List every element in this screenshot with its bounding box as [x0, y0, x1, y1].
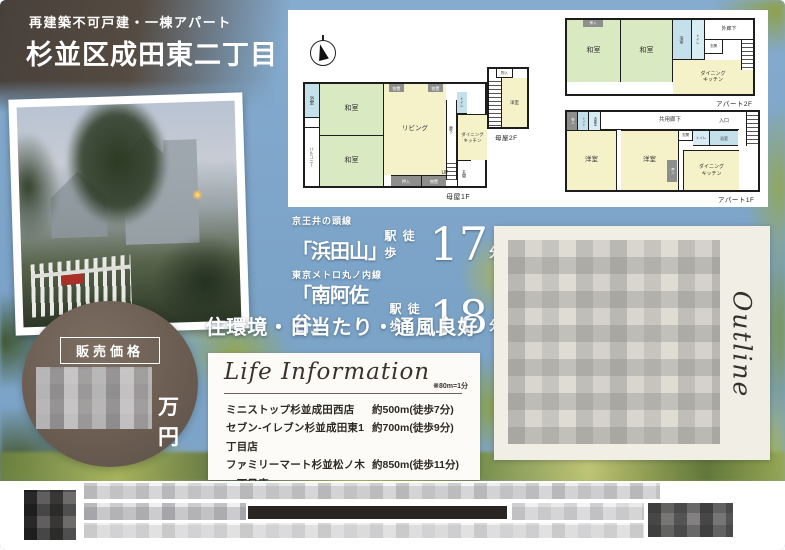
- page-title: 杉並区成田東二丁目: [26, 33, 278, 72]
- room-toilet: トイレ: [457, 92, 467, 114]
- apt1f-entrance: 玄関: [679, 130, 693, 141]
- outline-title: Outline: [728, 291, 757, 399]
- apt1f-toilet-1: トイレ: [578, 112, 589, 130]
- price-redacted-mosaic: [36, 367, 152, 429]
- walk-minutes-1: 17: [429, 225, 488, 264]
- outline-redacted-mosaic: [508, 240, 720, 444]
- catchphrase: 住環境・日当たり・通風良好: [192, 311, 492, 340]
- real-estate-flyer: 再建築不可戸建・一棟アパート 杉並区成田東二丁目 浴室 バルコニー 和室 和室 …: [0, 0, 785, 550]
- floorplan-panel: 浴室 バルコニー 和室 和室 リビング 物置 物置 廊下 トイレ ダイニング キ…: [288, 10, 768, 207]
- property-photo: [8, 92, 249, 335]
- life-information-panel: Life Information ※80m=1分 ミニストップ杉並成田西店 約5…: [208, 353, 480, 480]
- life-row: ミニストップ杉並成田西店 約500m(徒歩7分): [226, 401, 464, 419]
- room-living: リビング: [384, 84, 446, 175]
- floorplan-apt-2f: 和室 押入 和室 浴室 トイレ 外廊下 玄関 ダイニング キッチン: [565, 18, 755, 96]
- room-closet-2f: 物入: [496, 69, 513, 78]
- apt2f-outer-corridor: 外廊下: [705, 20, 753, 40]
- life-title-underline: [224, 393, 462, 394]
- floorplan-apt-1f: 物入 トイレ 洗面室 共用廊下 入口 洋室 洋室 玄関 トイレ 浴室 押入 ダイ…: [565, 110, 760, 192]
- room-entrance: 玄関: [457, 160, 471, 186]
- apt1f-storage: 物入: [567, 112, 578, 130]
- apt2f-entrance: 玄関: [705, 40, 723, 54]
- apt1f-western-1: 洋室: [567, 130, 617, 190]
- room-western-2f: 洋室: [502, 78, 527, 127]
- store-name: ミニストップ杉並成田西店: [226, 401, 372, 419]
- access-main-1: 「浜田山」 駅 徒歩 17 分: [292, 225, 502, 264]
- store-name: セブン-イレブン杉並成田東1丁目店: [226, 419, 372, 456]
- plan-caption-main-2f: 母屋2F: [495, 132, 518, 142]
- footer-redacted-line-2b: [512, 503, 644, 520]
- room-japanese-2: 和室: [320, 136, 384, 186]
- plan-caption-apt-1f: アパート1F: [718, 194, 754, 204]
- plan-caption-apt-2f: アパート2F: [716, 98, 752, 108]
- photo-sign: [61, 273, 83, 285]
- store-distance: 約850m(徒歩11分): [372, 456, 464, 474]
- price-circle: 販売価格 万円: [22, 301, 198, 467]
- apt1f-toilet-2: トイレ: [693, 130, 710, 146]
- outline-panel: Outline: [494, 226, 770, 460]
- apt1f-bath: 浴室: [710, 130, 738, 146]
- room-storage-3: 物置: [421, 175, 446, 186]
- footer-redacted-line-2a: [84, 503, 246, 520]
- room-storage-2: 物置: [428, 84, 443, 92]
- apt2f-closet: 押入: [583, 20, 603, 27]
- apt1f-dining-kitchen: ダイニング キッチン: [683, 150, 739, 190]
- apt2f-stairs: [741, 40, 753, 70]
- footer-redacted-dark-block: [648, 503, 733, 537]
- room-bath: 浴室: [305, 84, 320, 118]
- life-row: セブン-イレブン杉並成田東1丁目店 約700m(徒歩9分): [226, 419, 464, 456]
- plan-caption-main-1f: 母屋1F: [446, 192, 470, 202]
- apt1f-entry: 入口: [711, 112, 737, 130]
- floorplan-main-1f: 浴室 バルコニー 和室 和室 リビング 物置 物置 廊下 トイレ ダイニング キ…: [303, 82, 487, 188]
- photo-streetlamp: [192, 190, 202, 200]
- floorplan-main-2f: 物入 洋室: [487, 67, 529, 129]
- station-suffix-1: 駅 徒歩: [384, 227, 426, 261]
- footer-logo-redacted: [24, 490, 76, 540]
- store-distance: 約500m(徒歩7分): [372, 401, 464, 419]
- room-japanese-1: 和室: [320, 84, 384, 136]
- apt2f-japanese-2: 和室: [621, 20, 673, 82]
- footer-dark-bar: [248, 506, 507, 519]
- room-closet: 押入: [391, 175, 421, 186]
- header-subtitle: 再建築不可戸建・一棟アパート: [29, 12, 232, 31]
- room-balcony: バルコニー: [305, 128, 320, 186]
- room-dining-kitchen: ダイニング キッチン: [457, 114, 487, 160]
- price-unit: 万円: [158, 391, 198, 451]
- life-walk-note: ※80m=1分: [433, 381, 468, 391]
- store-distance: 約700m(徒歩9分): [372, 419, 464, 437]
- apt1f-closet: 押入: [667, 160, 677, 182]
- station-name-1: 「浜田山」: [292, 235, 382, 264]
- stairs-main-2f: [489, 78, 502, 127]
- footer: [0, 481, 785, 550]
- photo-tree-2: [17, 123, 83, 280]
- room-storage-1: 物置: [389, 84, 404, 92]
- apt2f-toilet: トイレ: [692, 20, 705, 60]
- footer-redacted-line-1: [84, 483, 660, 499]
- footer-redacted-line-3: [84, 523, 644, 538]
- apt1f-stairs: [746, 112, 758, 146]
- property-photo-image: [17, 101, 242, 328]
- compass-north-icon: [310, 40, 336, 66]
- room-hall: 廊下: [446, 100, 457, 160]
- price-label: 販売価格: [60, 337, 160, 364]
- apt2f-bath: 浴室: [673, 20, 692, 60]
- access-line-1: 京王井の頭線 「浜田山」 駅 徒歩 17 分: [292, 214, 502, 264]
- life-information-title: Life Information: [224, 359, 430, 385]
- apt2f-japanese-1: 和室: [567, 20, 621, 82]
- room-washroom: [305, 118, 320, 128]
- apt1f-washroom: 洗面室: [589, 112, 601, 130]
